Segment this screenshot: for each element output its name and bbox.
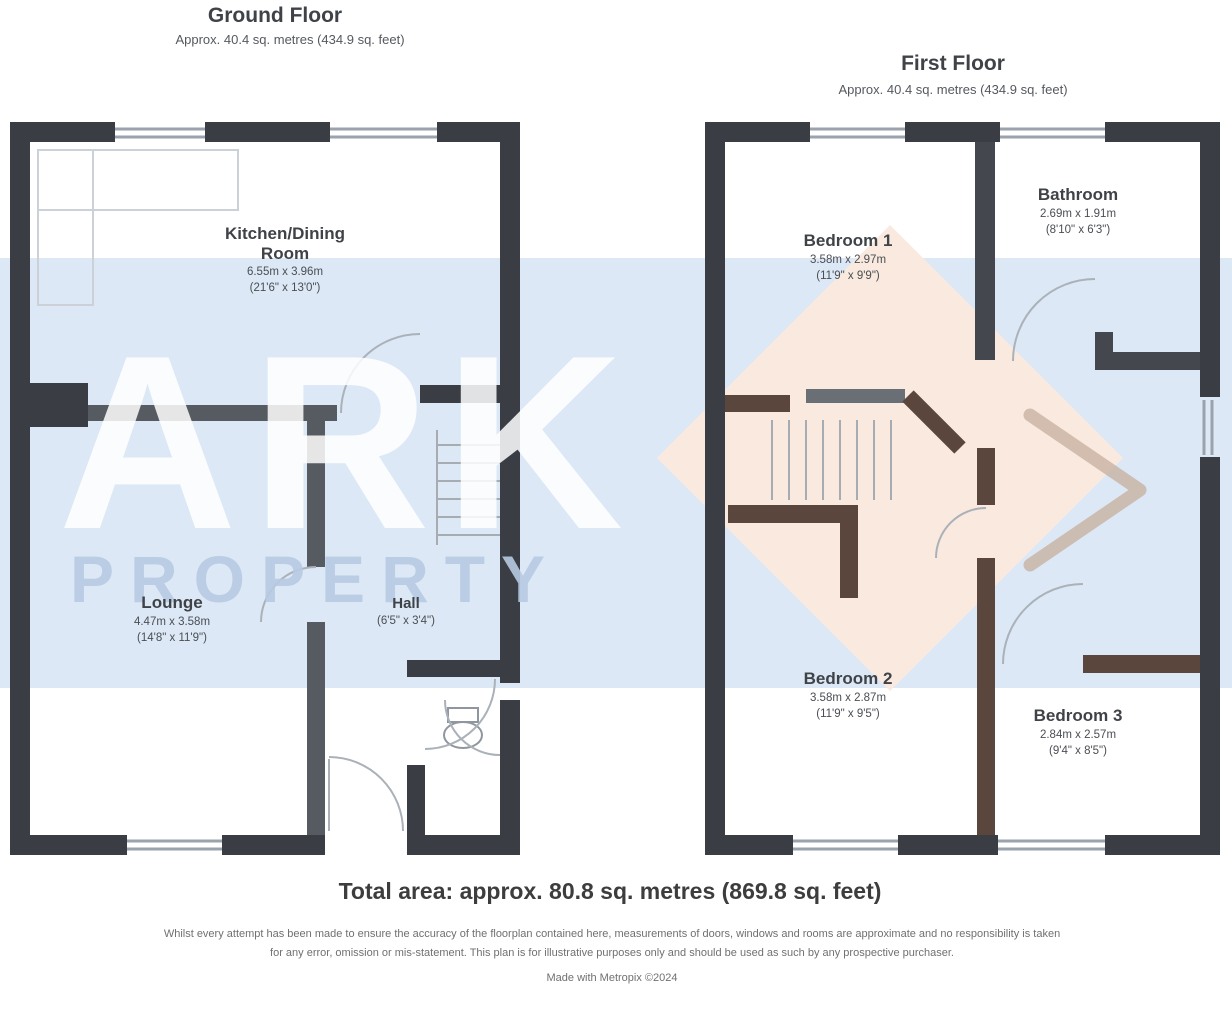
wc-wall: [407, 660, 503, 677]
room-label-bedroom-3: Bedroom 3 2.84m x 2.57m (9'4" x 8'5"): [1034, 706, 1123, 758]
room-label-kitchen-dining: Kitchen/Dining Room 6.55m x 3.96m (21'6"…: [225, 224, 345, 296]
first-floor-subtitle: Approx. 40.4 sq. metres (434.9 sq. feet): [838, 82, 1067, 97]
ground-floor-subtitle: Approx. 40.4 sq. metres (434.9 sq. feet): [175, 32, 404, 47]
room-label-bedroom-2: Bedroom 2 3.58m x 2.87m (11'9" x 9'5"): [804, 669, 893, 721]
room-name: Bathroom: [1038, 185, 1118, 205]
room-label-hall: Hall (6'5" x 3'4"): [377, 595, 435, 629]
room-dims-imperial: (11'9" x 9'9"): [804, 269, 893, 283]
room-name: Kitchen/Dining: [225, 224, 345, 244]
room-label-bathroom: Bathroom 2.69m x 1.91m (8'10" x 6'3"): [1038, 185, 1118, 237]
room-dims-imperial: (8'10" x 6'3"): [1038, 223, 1118, 237]
room-dims-metric: 3.58m x 2.97m: [804, 253, 893, 267]
room-name: Bedroom 2: [804, 669, 893, 689]
disclaimer-line-2: for any error, omission or mis-statement…: [270, 947, 954, 959]
room-dims-metric: 6.55m x 3.96m: [225, 265, 345, 279]
room-label-lounge: Lounge 4.47m x 3.58m (14'8" x 11'9"): [134, 593, 210, 645]
room-name: Lounge: [134, 593, 210, 613]
total-area-text: Total area: approx. 80.8 sq. metres (869…: [339, 878, 882, 905]
chimney-breast: [30, 383, 88, 427]
disclaimer-line-1: Whilst every attempt has been made to en…: [164, 928, 1060, 940]
room-dims-metric: 2.69m x 1.91m: [1038, 207, 1118, 221]
room-dims-imperial: (21'6" x 13'0"): [225, 281, 345, 295]
bathroom-wall: [975, 142, 995, 360]
made-with-text: Made with Metropix ©2024: [546, 972, 677, 984]
room-dims-metric: 3.58m x 2.87m: [804, 691, 893, 705]
room-dims-imperial: (6'5" x 3'4"): [377, 614, 435, 628]
ground-floor-title: Ground Floor: [208, 4, 342, 28]
floorplan-page: ARK PROPERTY Ground Floor Approx. 40.4 s…: [0, 0, 1232, 1010]
room-dims-imperial: (11'9" x 9'5"): [804, 707, 893, 721]
room-label-bedroom-1: Bedroom 1 3.58m x 2.97m (11'9" x 9'9"): [804, 231, 893, 283]
room-dims-imperial: (14'8" x 11'9"): [134, 631, 210, 645]
room-dims-imperial: (9'4" x 8'5"): [1034, 744, 1123, 758]
room-dims-metric: 2.84m x 2.57m: [1034, 728, 1123, 742]
floorplan-drawing: [0, 0, 1232, 1010]
room-name: Hall: [377, 595, 435, 612]
room-name: Bedroom 3: [1034, 706, 1123, 726]
room-name-line2: Room: [225, 244, 345, 264]
first-floor-title: First Floor: [901, 52, 1005, 76]
room-dims-metric: 4.47m x 3.58m: [134, 615, 210, 629]
room-name: Bedroom 1: [804, 231, 893, 251]
